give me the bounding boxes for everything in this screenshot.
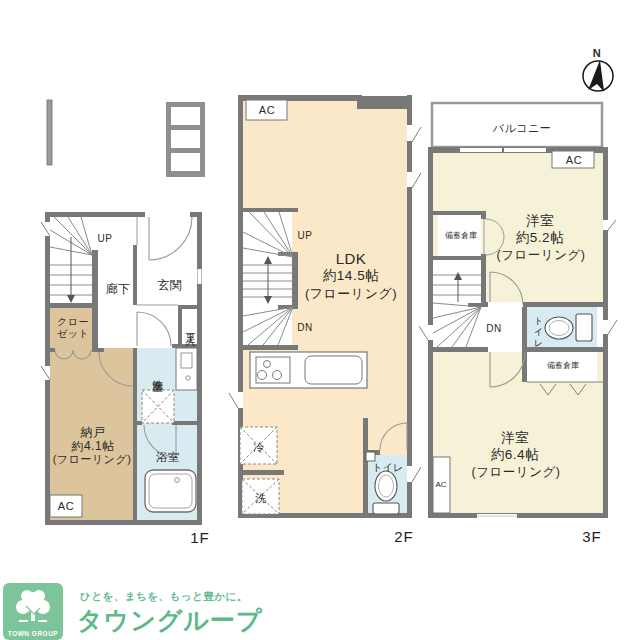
stairs-dn-label-2f: DN: [297, 323, 312, 333]
exterior-structures: [47, 100, 205, 177]
fridge-label: 冷: [253, 442, 265, 453]
ac-label-1f: AC: [58, 501, 74, 512]
room-lower-floor: (フローリング): [472, 466, 561, 479]
ldk-name: LDK: [336, 251, 367, 266]
floor-label-1f: 1F: [190, 530, 210, 545]
kitchen-counter: [250, 352, 367, 388]
room-lower-size: 約6.4帖: [491, 448, 539, 462]
ac-label-3f-lower: AC: [435, 481, 446, 489]
shoe-cabinet-label: 下足入: [185, 326, 195, 329]
ac-label-2f: AC: [259, 105, 275, 116]
hallway-label: 廊下: [106, 283, 131, 295]
closet-label-line2: ゼット: [57, 329, 89, 339]
storage-room-size: 約4.1帖: [71, 440, 114, 452]
ac-label-3f-upper: AC: [566, 155, 582, 166]
footer-tagline: ひとを、まちを、もっと豊かに。: [80, 590, 248, 604]
room-lower-name: 洋室: [501, 431, 529, 445]
floorplan-canvas: [0, 0, 640, 640]
bathtub-icon: [145, 470, 196, 512]
stairs-dn-label-3f: DN: [486, 324, 501, 334]
balcony-label: バルコニー: [493, 123, 552, 134]
floor-label-3f: 3F: [582, 529, 602, 544]
toilet-label-3f: トイレ: [534, 310, 543, 344]
toilet-label-2f: トイレ: [372, 463, 404, 473]
laundry-pan-icon: [142, 390, 174, 423]
ldk-floor: (フローリング): [305, 287, 397, 300]
stairs-up-label-2f: UP: [298, 231, 313, 241]
closet-label-line1: クロー: [57, 317, 89, 327]
room-upper-size: 約5.2帖: [516, 231, 564, 245]
washroom-label: 洗面室: [153, 372, 164, 375]
storage-room-floor: (フローリング): [53, 454, 132, 465]
washer-label: 洗: [255, 493, 267, 504]
logo-caption: TOWN GROUP: [8, 630, 58, 637]
floor-plan-1f: [41, 212, 202, 525]
ldk-size: 約14.5帖: [323, 269, 379, 283]
compass-north-label: N: [593, 48, 601, 59]
floorplan-page: { "colors": { "wall": "#787878", "floor_…: [0, 0, 640, 640]
footer-brand-name: タウングループ: [77, 604, 263, 637]
entrance-label: 玄関: [158, 279, 183, 291]
bathroom-label: 浴室: [156, 452, 180, 464]
sink-icon: [305, 356, 362, 384]
stairs-up-label-1f: UP: [98, 234, 113, 244]
floor-plan-2f: [229, 95, 421, 518]
floor-label-2f: 2F: [394, 529, 414, 544]
storage-upper-label: 備蓄倉庫: [445, 232, 477, 240]
north-compass-icon: [583, 59, 613, 92]
room-upper-name: 洋室: [526, 214, 554, 228]
vanity-sink-icon: [176, 348, 197, 390]
storage-room-name: 納戸: [81, 426, 106, 438]
storage-lower-label: 備蓄倉庫: [547, 362, 579, 370]
room-upper-floor: (フローリング): [497, 249, 586, 262]
